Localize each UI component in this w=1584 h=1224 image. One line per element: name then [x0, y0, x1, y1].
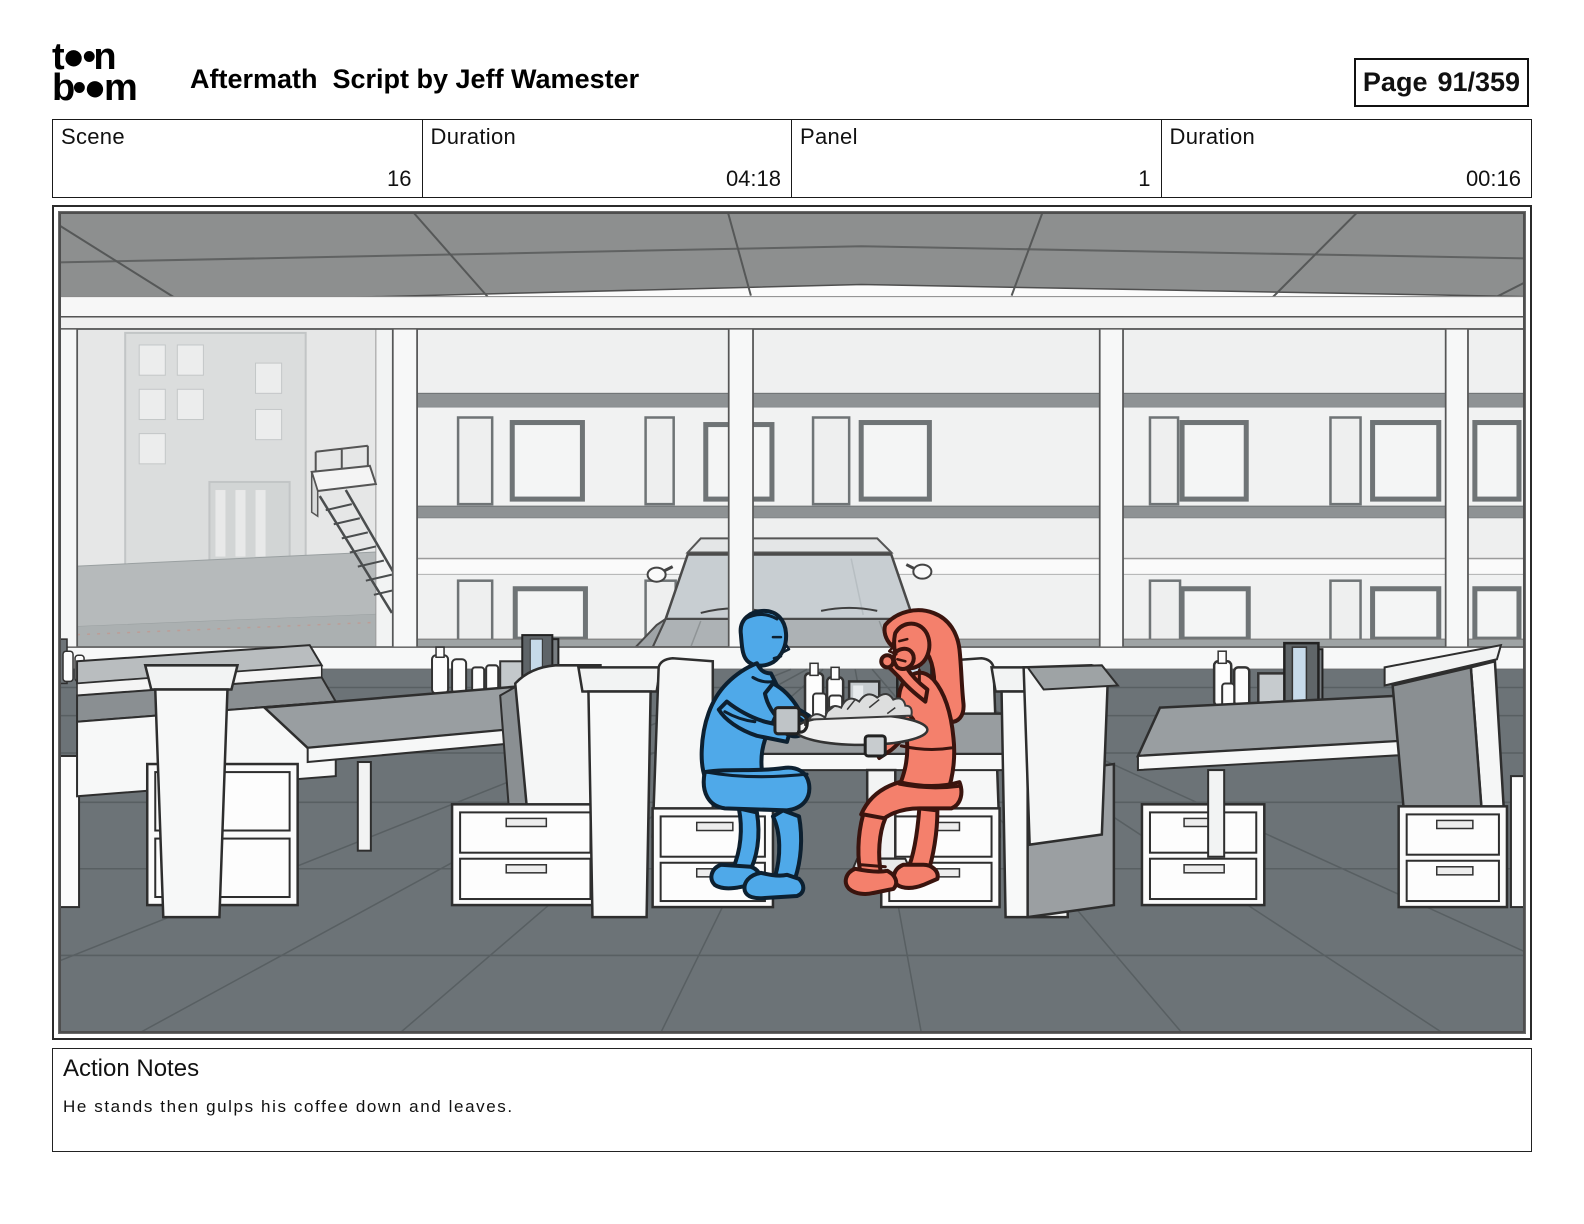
- action-notes-title: Action Notes: [63, 1055, 199, 1083]
- logo-line-2: b•●m: [52, 73, 135, 104]
- cell-scene-value: 16: [387, 166, 411, 192]
- action-notes-text: He stands then gulps his coffee down and…: [63, 1097, 514, 1117]
- cell-panel-label: Panel: [800, 124, 858, 150]
- page-label: Page: [1363, 67, 1428, 98]
- window-header-beam: [59, 297, 1525, 319]
- cell-panel-duration-label: Duration: [1170, 124, 1256, 150]
- cell-panel: Panel 1: [792, 120, 1162, 197]
- outside-scene: [67, 319, 1525, 647]
- panel-drawing: [59, 212, 1525, 1033]
- page-title: Aftermath Script by Jeff Wamester: [190, 64, 639, 95]
- cell-scene-duration-value: 04:18: [726, 166, 781, 192]
- info-table: Scene 16 Duration 04:18 Panel 1 Duration…: [52, 119, 1532, 198]
- page-number-box: Page 91/359: [1354, 58, 1529, 107]
- cell-panel-duration-value: 00:16: [1466, 166, 1521, 192]
- cell-scene: Scene 16: [53, 120, 423, 197]
- building-across-street: [405, 325, 1525, 647]
- storyboard-panel-frame: [58, 211, 1526, 1034]
- storyboard-page: t●•n b•●m Aftermath Script by Jeff Wames…: [0, 0, 1584, 1224]
- cell-panel-duration: Duration 00:16: [1162, 120, 1532, 197]
- cell-panel-value: 1: [1138, 166, 1150, 192]
- toonboom-logo: t●•n b•●m: [52, 42, 135, 104]
- storyboard-panel: [52, 205, 1532, 1040]
- action-notes-box: Action Notes He stands then gulps his co…: [52, 1048, 1532, 1152]
- cell-scene-label: Scene: [61, 124, 125, 150]
- divider-post-left: [578, 667, 660, 917]
- page-value: 91/359: [1437, 67, 1520, 98]
- cell-scene-duration: Duration 04:18: [423, 120, 793, 197]
- cell-scene-duration-label: Duration: [431, 124, 517, 150]
